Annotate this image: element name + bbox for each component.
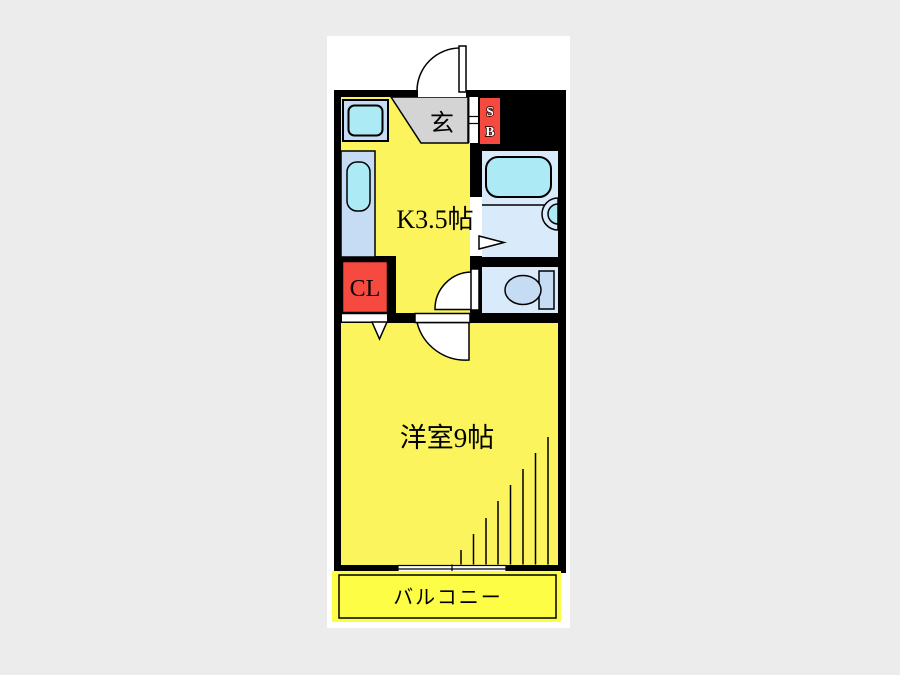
wall-left bbox=[334, 90, 341, 572]
room-door-leaf bbox=[415, 314, 470, 323]
entrance-door-leaf bbox=[459, 46, 466, 92]
closet-label: CL bbox=[350, 276, 381, 302]
balcony: バルコニー bbox=[332, 571, 561, 622]
shoe-box-label-s: S bbox=[486, 105, 494, 120]
bathtub bbox=[486, 157, 551, 197]
kitchen-stove-unit bbox=[343, 100, 388, 141]
wall-top-left bbox=[334, 90, 418, 97]
shoe-box-label-b: B bbox=[485, 125, 494, 140]
floor-plan-page: S B CL bbox=[0, 0, 900, 675]
kitchen-counter-sink bbox=[341, 151, 375, 257]
kitchen-label: K3.5帖 bbox=[396, 205, 473, 234]
balcony-label: バルコニー bbox=[393, 587, 503, 609]
toilet-bowl bbox=[505, 276, 541, 305]
wall-top-right-corner bbox=[501, 90, 558, 151]
toilet-door-leaf bbox=[471, 269, 479, 310]
wall-bath-toilet bbox=[470, 257, 566, 267]
wall-right bbox=[558, 90, 566, 573]
western-room-label: 洋室9帖 bbox=[400, 423, 495, 453]
genkan-label: 玄 bbox=[430, 110, 454, 137]
floor-plan-image: S B CL bbox=[0, 0, 900, 675]
closet-opening bbox=[342, 313, 387, 322]
